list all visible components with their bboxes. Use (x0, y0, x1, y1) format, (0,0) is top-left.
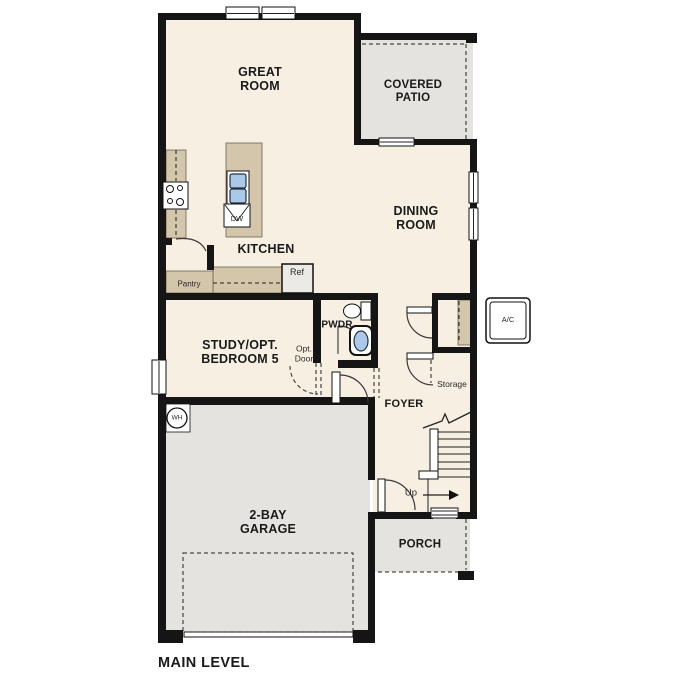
great-room-label: GREAT ROOM (238, 65, 282, 93)
up-label: Up (405, 489, 417, 500)
kitchen-counter-bottom (213, 267, 282, 293)
toilet-tank (361, 302, 371, 320)
pwdr-label: PWDR (321, 319, 352, 330)
dining-room-label: DINING ROOM (394, 204, 439, 232)
toilet-bowl (344, 304, 361, 318)
storage-label: Storage (437, 380, 467, 390)
study-label: STUDY/OPT. BEDROOM 5 (201, 338, 279, 366)
pwdr-sink (354, 331, 368, 351)
garage-door (184, 632, 353, 637)
stove (163, 182, 188, 209)
floor-plan: GREAT ROOM COVERED PATIO DINING ROOM KIT… (0, 0, 687, 687)
pantry-label: Pantry (177, 281, 200, 290)
plan-title: MAIN LEVEL (158, 655, 250, 671)
ac-label: A/C (502, 316, 515, 324)
closet-door-leaf (407, 307, 432, 313)
front-door-threshold (431, 508, 458, 518)
study-door-leaf (332, 372, 340, 403)
closet-shelf (458, 300, 472, 345)
garage-label: 2-BAY GARAGE (240, 508, 296, 536)
wh-label: WH (172, 414, 183, 421)
storage-door-leaf (407, 353, 433, 359)
dw-label: DW (231, 215, 244, 223)
garage-entry-door-leaf (378, 479, 385, 512)
ref-label: Ref (290, 267, 304, 277)
porch-label: PORCH (399, 539, 442, 552)
kitchen-label: KITCHEN (238, 242, 295, 256)
floor-plan-drawing (0, 0, 687, 687)
covered-patio-label: COVERED PATIO (384, 79, 442, 105)
opt-door-label: Opt. Door (295, 344, 313, 363)
stair-rail-bottom (419, 471, 438, 479)
foyer-label: FOYER (385, 398, 424, 410)
